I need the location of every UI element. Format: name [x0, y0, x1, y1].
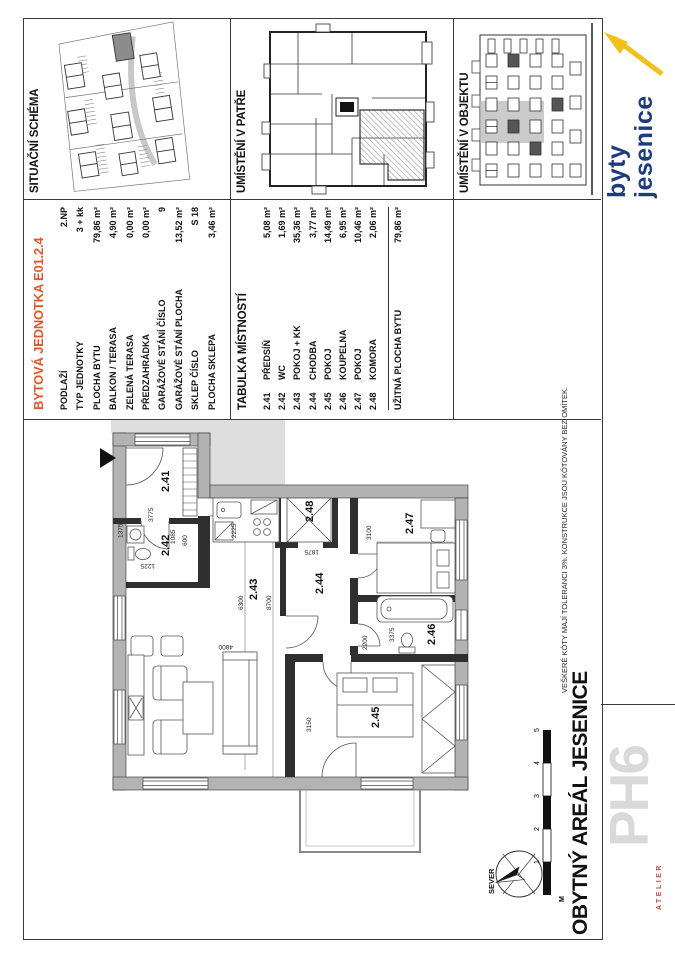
divider-row-1	[230, 19, 231, 420]
scale-tick: 4	[534, 761, 541, 765]
room-name: WC	[275, 238, 290, 380]
scale-tick: 5	[534, 728, 541, 732]
tolerance-note: VEŠKERÉ KÓTY MAJÍ TOLERANCI 3%. KONSTRUK…	[560, 405, 569, 693]
total-label: UŽITNÁ PLOCHA BYTU	[392, 243, 405, 410]
room-label: 2.46	[426, 624, 438, 645]
floor-location-title: UMÍSTĚNÍ V PATŘE	[236, 90, 248, 193]
row-value: 0,00 m²	[138, 207, 154, 238]
room-number: 2.44	[306, 380, 321, 410]
dimension: 3100	[366, 525, 373, 540]
north-label: SEVER	[487, 868, 496, 894]
floor-plan-drawing: 2.41 2.42 2.43 2.44 2.45 2.46 2.47 2.48 …	[23, 420, 601, 940]
armchairs	[153, 666, 187, 754]
dimension: 8700	[266, 595, 273, 610]
row-value: 0,00 m²	[122, 207, 138, 238]
table-row: PLOCHA BYTU79,86 m²	[89, 207, 105, 410]
table-row: TYP JEDNOTKY3 + kk	[72, 207, 88, 410]
byty-jesenice-logo: byty jesenice	[604, 20, 674, 198]
drawing-sheet: SITUAČNÍ SCHÉMA UMÍSTĚNÍ V PATŘE UMÍSTĚN…	[0, 0, 675, 955]
row-label: GARÁŽOVÉ STÁNÍ PLOCHA	[171, 289, 187, 410]
table-row: GARÁŽOVÉ STÁNÍ ČÍSLO9	[154, 207, 170, 410]
scale-unit-label: M	[559, 896, 566, 902]
dimension: 3150	[306, 717, 313, 732]
room-label: 2.41	[160, 471, 172, 492]
room-label: 2.45	[370, 707, 382, 728]
rooms-table: 2.41PŘEDSÍŇ5,08 m² 2.42WC1,69 m² 2.43POK…	[260, 207, 405, 410]
row-label: PODLAŽÍ	[56, 371, 72, 411]
room-name: POKOJ	[321, 243, 336, 380]
row-label: PLOCHA SKLEPA	[204, 334, 220, 410]
table-row: 2.41PŘEDSÍŇ5,08 m²	[260, 207, 275, 410]
room-area: 6,95 m²	[336, 207, 351, 238]
dimension: 1085	[170, 529, 177, 544]
dimension: 600	[182, 535, 189, 546]
room-name: CHODBA	[306, 238, 321, 380]
room-number: 2.47	[351, 380, 366, 410]
table-row: 2.45POKOJ14,49 m²	[321, 207, 336, 410]
table-row: 2.48KOMORA2,06 m²	[366, 207, 381, 410]
room-number: 2.46	[336, 380, 351, 410]
dimension: 1375	[118, 523, 125, 538]
building-elevation-drawing	[464, 19, 600, 199]
row-value: 79,86 m²	[89, 207, 105, 243]
dining-chairs	[131, 636, 183, 656]
row-label: PLOCHA BYTU	[89, 345, 105, 410]
scale-tick: 2	[534, 827, 541, 831]
table-row: PLOCHA SKLEPA3,46 m²	[204, 207, 220, 410]
unit-title: BYTOVÁ JEDNOTKA E01.2.4	[31, 238, 46, 410]
row-value: 9	[154, 207, 170, 212]
row-value: 3,46 m²	[204, 207, 220, 238]
room-name: POKOJ	[351, 243, 366, 380]
ph6-logo: PH6	[594, 746, 664, 847]
room-area: 3,77 m²	[306, 207, 321, 238]
row-label: TYP JEDNOTKY	[72, 341, 88, 410]
table-row: BALKON / TERASA4,90 m²	[105, 207, 121, 410]
dimension: 2200	[362, 635, 369, 650]
bathtub	[377, 596, 453, 622]
table-row: ZELENÁ TERASA0,00 m²	[122, 207, 138, 410]
row-label: BALKON / TERASA	[105, 327, 121, 410]
table-row: 2.46KOUPELNA6,95 m²	[336, 207, 351, 410]
row-label: SKLEP ČÍSLO	[187, 350, 203, 410]
wardrobe-bedroom	[422, 665, 455, 773]
room-number: 2.41	[260, 380, 275, 410]
scale-tick: 3	[534, 794, 541, 798]
entry-closet	[183, 448, 197, 516]
roof-elements	[472, 61, 480, 171]
tv-bench	[128, 655, 144, 755]
washing-machine	[127, 526, 144, 543]
dimension: 4800	[218, 643, 233, 650]
bed-single	[377, 543, 455, 593]
room-area: 14,49 m²	[321, 207, 336, 243]
divider-footer	[601, 704, 675, 705]
sofa	[223, 652, 257, 754]
stair-core	[336, 98, 358, 116]
room-label: 2.43	[248, 579, 260, 600]
table-row: 2.42WC1,69 m²	[275, 207, 290, 410]
row-value: 13,52 m²	[171, 207, 187, 243]
row-label: GARÁŽOVÉ STÁNÍ ČÍSLO	[154, 299, 170, 410]
project-title: OBYTNÝ AREÁL JESENICE	[569, 671, 593, 935]
divider-tables-thumbs	[23, 199, 601, 200]
wc-toilet	[128, 547, 151, 560]
room-area: 1,69 m²	[275, 207, 290, 238]
brand-arrow-icon	[604, 26, 668, 78]
table-row: 2.44CHODBA3,77 m²	[306, 207, 321, 410]
room-label: 2.47	[404, 513, 416, 534]
dimension: 6300	[238, 595, 245, 610]
room-name: KOMORA	[366, 238, 381, 380]
dimension: 3775	[148, 507, 155, 522]
rooms-table-title: TABULKA MÍSTNOSTÍ	[237, 293, 249, 410]
bath-toilet	[399, 633, 415, 653]
room-area: 10,46 m²	[351, 207, 366, 243]
site-buildings	[60, 50, 180, 183]
room-number: 2.48	[366, 380, 381, 410]
desk-chair	[421, 500, 455, 542]
dimension: 3375	[389, 627, 396, 642]
divider-row-2	[453, 19, 454, 420]
row-value: 3 + kk	[72, 207, 88, 232]
row-value: S 18	[187, 207, 203, 226]
dimension: 2225	[231, 523, 238, 538]
page-canvas: SITUAČNÍ SCHÉMA UMÍSTĚNÍ V PATŘE UMÍSTĚN…	[0, 0, 675, 955]
room-name: KOUPELNA	[336, 238, 351, 380]
floor-location-drawing	[252, 20, 448, 198]
table-row: PŘEDZAHRÁDKA0,00 m²	[138, 207, 154, 410]
room-number: 2.43	[290, 380, 305, 410]
room-area: 35,36 m²	[290, 207, 305, 243]
row-label: ZELENÁ TERASA	[122, 334, 138, 410]
site-schema-drawing	[28, 20, 228, 198]
room-name: PŘEDSÍŇ	[260, 238, 275, 380]
rooms-total-row: UŽITNÁ PLOCHA BYTU 79,86 m²	[388, 207, 405, 410]
dimension: 1875	[304, 548, 319, 555]
kitchen-counter	[213, 498, 279, 542]
table-row: GARÁŽOVÉ STÁNÍ PLOCHA13,52 m²	[171, 207, 187, 410]
room-label: 2.48	[304, 501, 316, 522]
room-label: 2.44	[314, 572, 326, 594]
table-row: SKLEP ČÍSLOS 18	[187, 207, 203, 410]
ph6-atelier-label: ATELIER	[656, 863, 663, 910]
row-value: 4,90 m²	[105, 207, 121, 238]
coffee-table	[183, 682, 213, 734]
north-compass: SEVER	[487, 851, 542, 897]
dimension: 1225	[140, 562, 155, 569]
unit-info-table: PODLAŽÍ2.NP TYP JEDNOTKY3 + kk PLOCHA BY…	[56, 207, 220, 410]
table-row: PODLAŽÍ2.NP	[56, 207, 72, 410]
highlighted-building	[112, 33, 134, 61]
room-number: 2.42	[275, 380, 290, 410]
row-label: PŘEDZAHRÁDKA	[138, 334, 154, 410]
room-area: 5,08 m²	[260, 207, 275, 238]
room-name: POKOJ + KK	[290, 243, 305, 380]
row-value: 2.NP	[56, 207, 72, 227]
room-area: 2,06 m²	[366, 207, 381, 238]
total-value: 79,86 m²	[392, 207, 405, 243]
scale-tick: 1	[534, 860, 541, 864]
room-number: 2.45	[321, 380, 336, 410]
table-row: 2.43POKOJ + KK35,36 m²	[290, 207, 305, 410]
table-row: 2.47POKOJ10,46 m²	[351, 207, 366, 410]
balcony-outline	[300, 790, 420, 852]
scale-bar: M 1 2 3 4 5	[534, 728, 566, 902]
